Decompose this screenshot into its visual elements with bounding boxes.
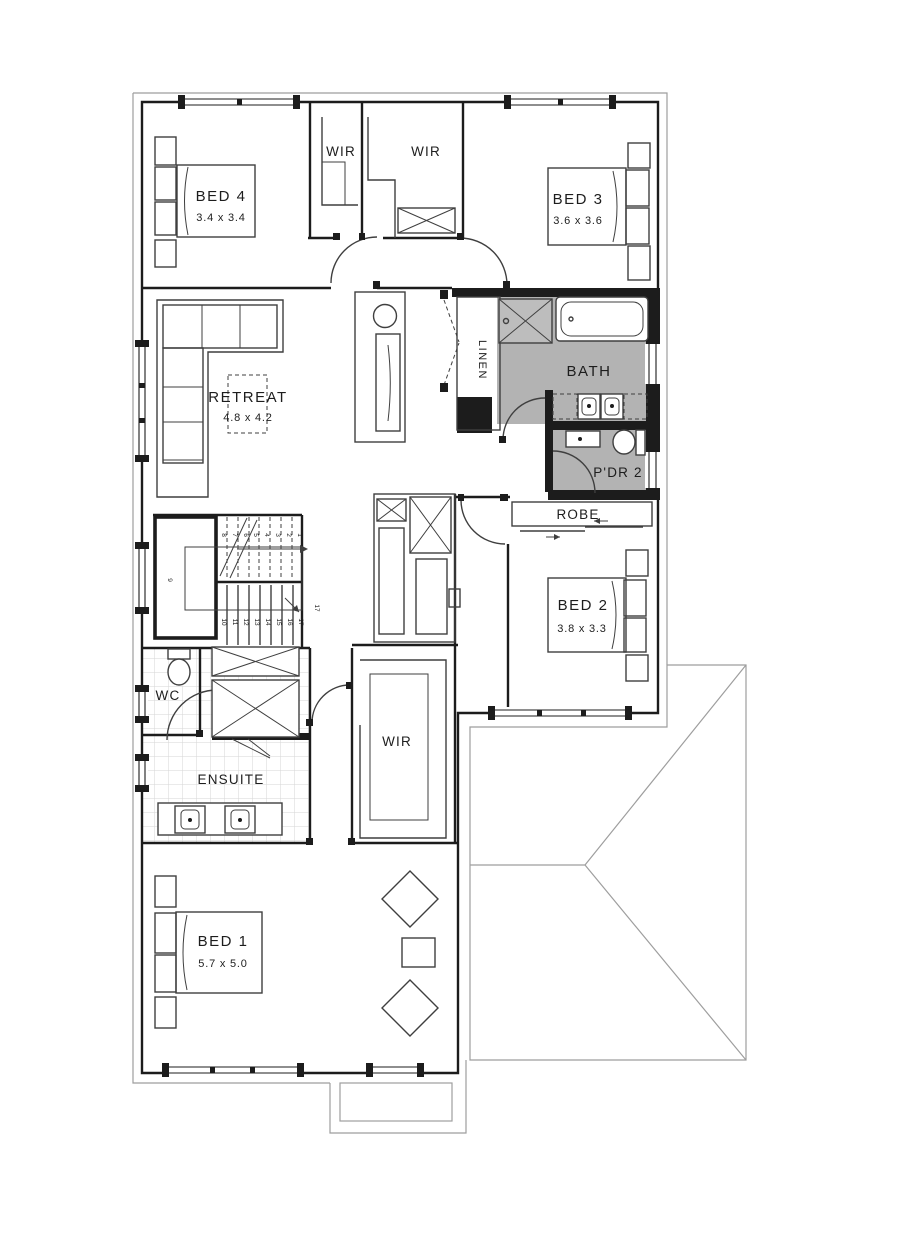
roof-outline [470,665,746,1060]
bathtub [556,297,648,341]
bed1-dims: 5.7 x 5.0 [198,958,247,970]
stair-step: 14 [264,618,271,626]
staircase: 8 7 6 5 4 3 2 1 9 10 11 12 13 14 15 16 1… [155,517,320,645]
stair-step: 15 [275,618,282,626]
wir-left-furniture [322,117,358,205]
bed2-furniture [548,550,648,681]
stair-step: 9 [166,578,173,582]
bed3-label: BED 3 [553,191,604,208]
stair-step: 4 [263,533,270,537]
stair-step: 5 [252,533,259,537]
bed4-label: BED 4 [196,188,247,205]
floor-plan-page: 8 7 6 5 4 3 2 1 9 10 11 12 13 14 15 16 1… [0,0,900,1245]
bed1-furniture [155,871,438,1036]
wir-master-label: WIR [382,734,412,749]
floor-plan-drawing: 8 7 6 5 4 3 2 1 9 10 11 12 13 14 15 16 1… [0,0,900,1245]
stair-step: 11 [231,619,238,626]
bed4-dims: 3.4 x 3.4 [196,212,245,224]
windows [135,95,632,1077]
stair-step: 7 [231,533,238,537]
stair-step: 8 [220,533,227,537]
wir-right-furniture [368,117,455,238]
wc-furniture [168,649,190,685]
stair-step: 2 [285,533,292,537]
stair-step: 1 [296,533,303,537]
wir-master-furniture [360,660,446,838]
stair-step: 12 [242,618,249,626]
stair-step: 10 [220,618,227,626]
ensuite-vanity [158,803,282,835]
perimeter-wall [142,102,658,1073]
ensuite-label: ENSUITE [198,772,265,787]
stair-flight-label: 17 [313,604,320,612]
wc-label: WC [156,688,181,703]
retreat-label: RETREAT [208,389,287,406]
bed2-label: BED 2 [558,597,609,614]
bed3-furniture [548,143,650,280]
robe-label: ROBE [556,507,599,522]
stair-step: 3 [274,533,281,537]
retreat-feature-unit [355,292,405,442]
pdr2-vanity [566,431,600,447]
linen-label: LINEN [476,340,488,380]
wir-left-label: WIR [326,144,356,159]
bed1-bed [176,912,262,993]
bed2-bed [548,578,626,652]
bed2-dims: 3.8 x 3.3 [557,623,606,635]
bed1-label: BED 1 [198,933,249,950]
stair-step: 13 [253,618,260,626]
pdr2-toilet [613,430,645,455]
stair-step: 6 [242,533,249,537]
hall-cupboards [374,494,460,642]
bath-label: BATH [567,363,612,380]
bed1-chairs [382,871,438,1036]
pdr2-label: P'DR 2 [593,465,643,480]
stair-step: 17 [297,618,304,626]
wir-right-label: WIR [411,144,441,159]
stair-step: 16 [286,618,293,626]
retreat-dims: 4.8 x 4.2 [223,412,272,424]
bed3-dims: 3.6 x 3.6 [553,215,602,227]
